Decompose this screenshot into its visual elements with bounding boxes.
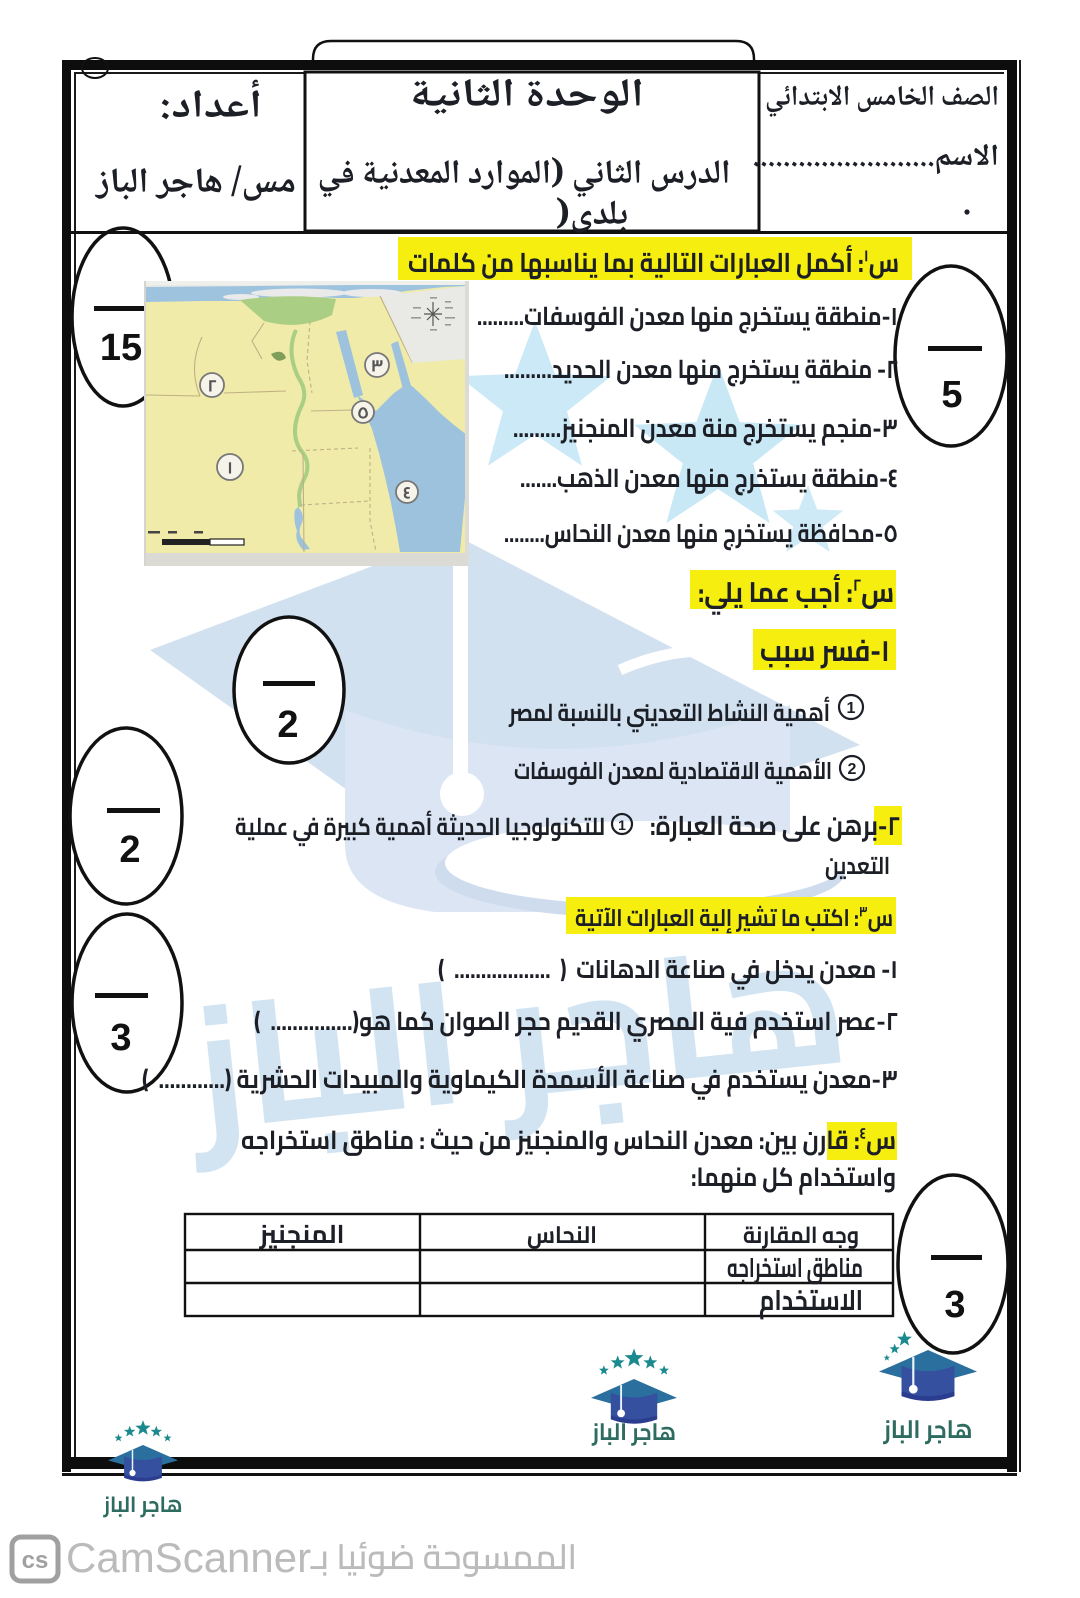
svg-text:15: 15	[100, 327, 142, 369]
svg-text:cs: cs	[22, 1547, 49, 1574]
svg-text:1: 1	[618, 817, 626, 833]
svg-text:CamScanner: CamScanner	[66, 1534, 311, 1581]
svg-text:2: 2	[848, 761, 857, 778]
svg-text:1: 1	[847, 700, 856, 717]
svg-text:5: 5	[941, 374, 962, 416]
svg-text:2: 2	[277, 704, 298, 746]
svg-text:2: 2	[119, 829, 140, 871]
svg-text:3: 3	[110, 1017, 131, 1059]
svg-text:3: 3	[944, 1284, 965, 1326]
